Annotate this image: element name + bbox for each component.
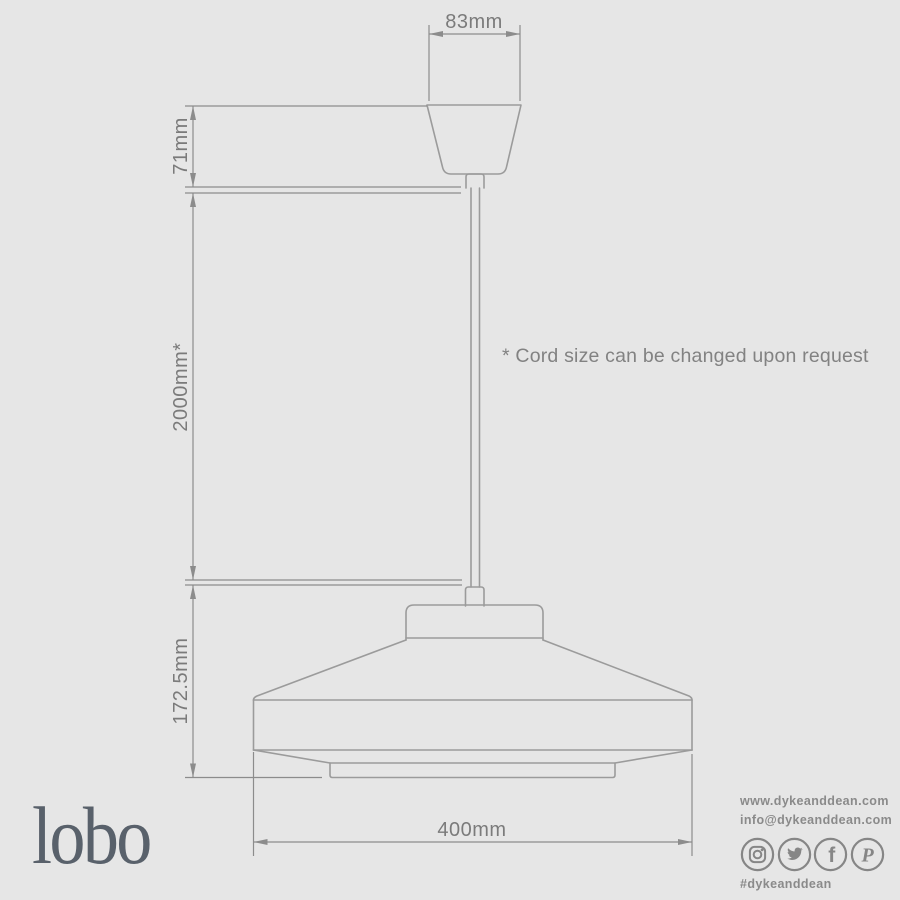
- brand-logo: lobo: [32, 795, 150, 877]
- instagram-icon: [740, 837, 775, 872]
- email-address: info@dykeanddean.com: [740, 811, 900, 830]
- arrowhead: [429, 31, 443, 37]
- cord-size-note: * Cord size can be changed upon request: [502, 344, 869, 368]
- arrowhead: [678, 839, 692, 845]
- shade-cone-right: [543, 640, 692, 700]
- contact-block: www.dykeanddean.com info@dykeanddean.com…: [740, 792, 900, 894]
- arrowhead: [506, 31, 520, 37]
- cord-bottom-connector: [466, 587, 485, 606]
- pinterest-icon: P: [850, 837, 885, 872]
- arrowhead: [190, 193, 196, 207]
- diffuser-ring: [330, 763, 615, 778]
- ceiling-canopy: [427, 105, 521, 174]
- shade-neck: [406, 605, 543, 640]
- pendant-lamp-outline: [254, 105, 693, 778]
- cord-top-connector: [466, 174, 484, 188]
- dimension-label-cord-length: 2000mm*: [170, 342, 192, 431]
- shade-bottom-taper-right: [615, 750, 692, 763]
- hashtag: #dykeanddean: [740, 875, 900, 894]
- shade-bottom-taper-left: [254, 750, 331, 763]
- website-url: www.dykeanddean.com: [740, 792, 900, 811]
- arrowhead: [190, 566, 196, 580]
- lamp-technical-drawing: 83mm 71mm 2000mm* 172.5mm 400mm: [0, 0, 900, 900]
- shade-cone-left: [254, 640, 407, 700]
- facebook-glyph: f: [828, 844, 836, 867]
- arrowhead: [190, 585, 196, 599]
- dimension-label-canopy-width: 83mm: [445, 11, 503, 33]
- dimension-label-shade-diameter: 400mm: [437, 819, 506, 841]
- dimension-label-canopy-height: 71mm: [170, 117, 192, 175]
- facebook-icon: f: [813, 837, 848, 872]
- product-dimension-drawing: 83mm 71mm 2000mm* 172.5mm 400mm * Cord s…: [0, 0, 900, 900]
- pinterest-glyph: P: [860, 845, 874, 867]
- twitter-icon: [777, 837, 812, 872]
- dimension-label-shade-height: 172.5mm: [170, 638, 192, 725]
- social-icons-row: f P: [740, 837, 900, 872]
- arrowhead: [254, 839, 268, 845]
- arrowhead: [190, 764, 196, 778]
